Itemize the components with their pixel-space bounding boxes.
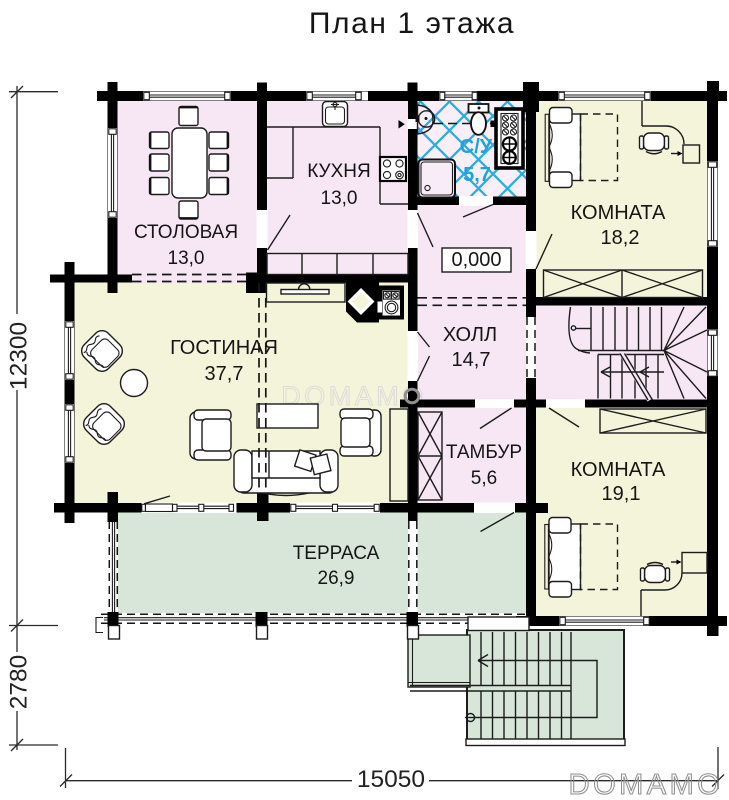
svg-text:DOMAMO: DOMAMO xyxy=(569,769,724,800)
svg-text:13,0: 13,0 xyxy=(168,248,205,269)
svg-text:12300: 12300 xyxy=(6,322,33,390)
svg-text:С/У: С/У xyxy=(460,136,493,158)
svg-text:14,7: 14,7 xyxy=(452,349,491,371)
svg-text:КУХНЯ: КУХНЯ xyxy=(307,161,370,182)
svg-text:ТАМБУР: ТАМБУР xyxy=(446,442,522,463)
svg-text:15050: 15050 xyxy=(357,766,425,793)
svg-text:КОМНАТА: КОМНАТА xyxy=(571,459,666,481)
svg-text:ТЕРРАСА: ТЕРРАСА xyxy=(293,543,380,564)
svg-text:13,0: 13,0 xyxy=(321,188,358,209)
svg-text:СТОЛОВАЯ: СТОЛОВАЯ xyxy=(134,222,238,243)
svg-text:КОМНАТА: КОМНАТА xyxy=(571,202,666,224)
svg-text:26,9: 26,9 xyxy=(318,568,355,589)
svg-text:18,2: 18,2 xyxy=(601,227,640,249)
svg-text:37,7: 37,7 xyxy=(205,363,244,385)
svg-text:5,7: 5,7 xyxy=(463,164,491,186)
svg-text:0,000: 0,000 xyxy=(451,249,501,271)
svg-text:19,1: 19,1 xyxy=(602,483,641,505)
svg-text:ХОЛЛ: ХОЛЛ xyxy=(443,324,497,346)
svg-text:ГОСТИНАЯ: ГОСТИНАЯ xyxy=(170,337,278,359)
svg-text:План 1 этажа: План 1 этажа xyxy=(309,7,515,40)
svg-text:2780: 2780 xyxy=(6,655,33,710)
svg-text:5,6: 5,6 xyxy=(471,468,497,489)
